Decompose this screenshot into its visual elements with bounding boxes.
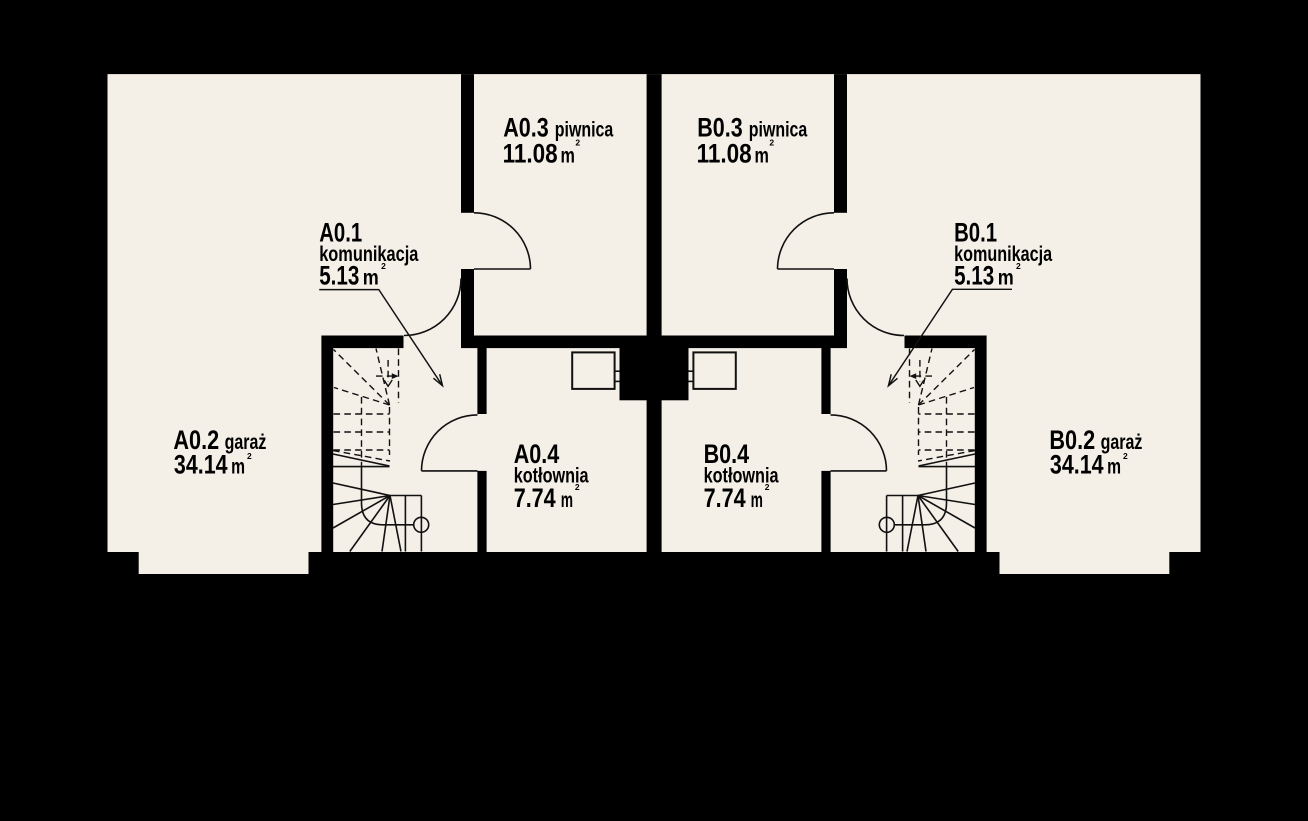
svg-text:piwnica: piwnica [749,119,808,142]
svg-text:garaż: garaż [1101,431,1143,454]
svg-text:m: m [998,266,1014,289]
svg-text:7.74: 7.74 [704,483,746,513]
svg-text:2: 2 [247,451,252,461]
svg-text:garaż: garaż [225,431,267,454]
svg-text:m: m [1107,456,1121,479]
svg-text:2: 2 [1123,451,1128,461]
svg-text:m: m [231,456,245,479]
svg-text:5.13: 5.13 [954,260,994,290]
svg-text:2: 2 [575,482,580,492]
svg-text:11.08: 11.08 [697,138,752,168]
svg-text:m: m [751,489,763,512]
svg-text:m: m [561,489,573,512]
svg-text:2: 2 [381,261,386,271]
svg-text:34.14: 34.14 [1050,450,1104,480]
svg-text:m: m [755,144,769,167]
svg-text:2: 2 [575,138,580,148]
svg-text:2: 2 [1016,261,1021,271]
svg-text:5.13: 5.13 [319,260,359,290]
svg-text:m: m [561,144,575,167]
svg-text:2: 2 [765,482,770,492]
svg-text:2: 2 [769,138,774,148]
svg-text:piwnica: piwnica [555,119,614,142]
svg-text:34.14: 34.14 [174,450,228,480]
svg-text:7.74: 7.74 [514,483,556,513]
svg-text:m: m [363,266,379,289]
svg-text:11.08: 11.08 [503,138,558,168]
